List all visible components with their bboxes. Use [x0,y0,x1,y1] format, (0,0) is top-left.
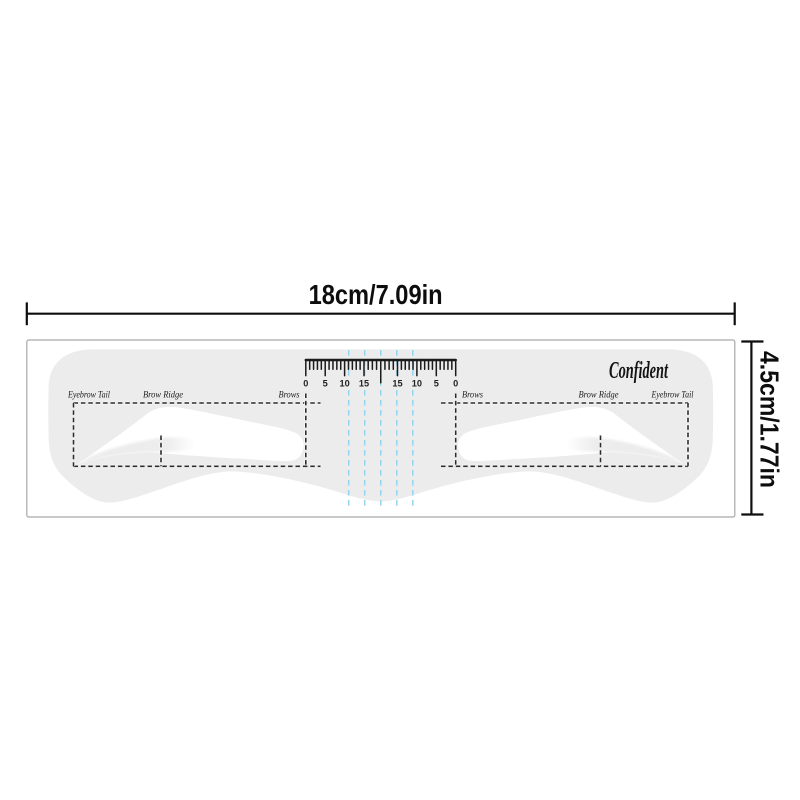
svg-text:5: 5 [434,379,439,389]
svg-text:Brow Ridge: Brow Ridge [579,390,619,400]
svg-text:Brows: Brows [462,390,483,400]
svg-text:15: 15 [359,379,369,389]
svg-text:15: 15 [392,379,402,389]
svg-text:Confident: Confident [609,358,669,384]
svg-text:Brows: Brows [279,390,300,400]
svg-text:5: 5 [323,379,328,389]
svg-text:4.5cm/1.77in: 4.5cm/1.77in [755,351,785,488]
svg-text:0: 0 [453,379,458,389]
svg-text:10: 10 [339,379,349,389]
svg-text:18cm/7.09in: 18cm/7.09in [309,279,443,310]
svg-text:0: 0 [303,379,308,389]
svg-text:Brow Ridge: Brow Ridge [143,390,183,400]
svg-text:Eyebrow Tail: Eyebrow Tail [67,390,110,400]
svg-text:10: 10 [412,379,422,389]
svg-text:Eyebrow Tail: Eyebrow Tail [651,390,694,400]
